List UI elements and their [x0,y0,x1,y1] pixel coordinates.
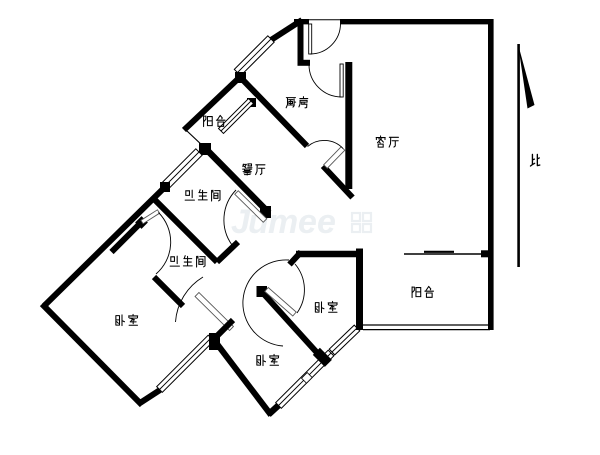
svg-text:e: e [298,203,317,241]
svg-text:m: m [268,203,298,241]
svg-text:e: e [317,203,336,241]
